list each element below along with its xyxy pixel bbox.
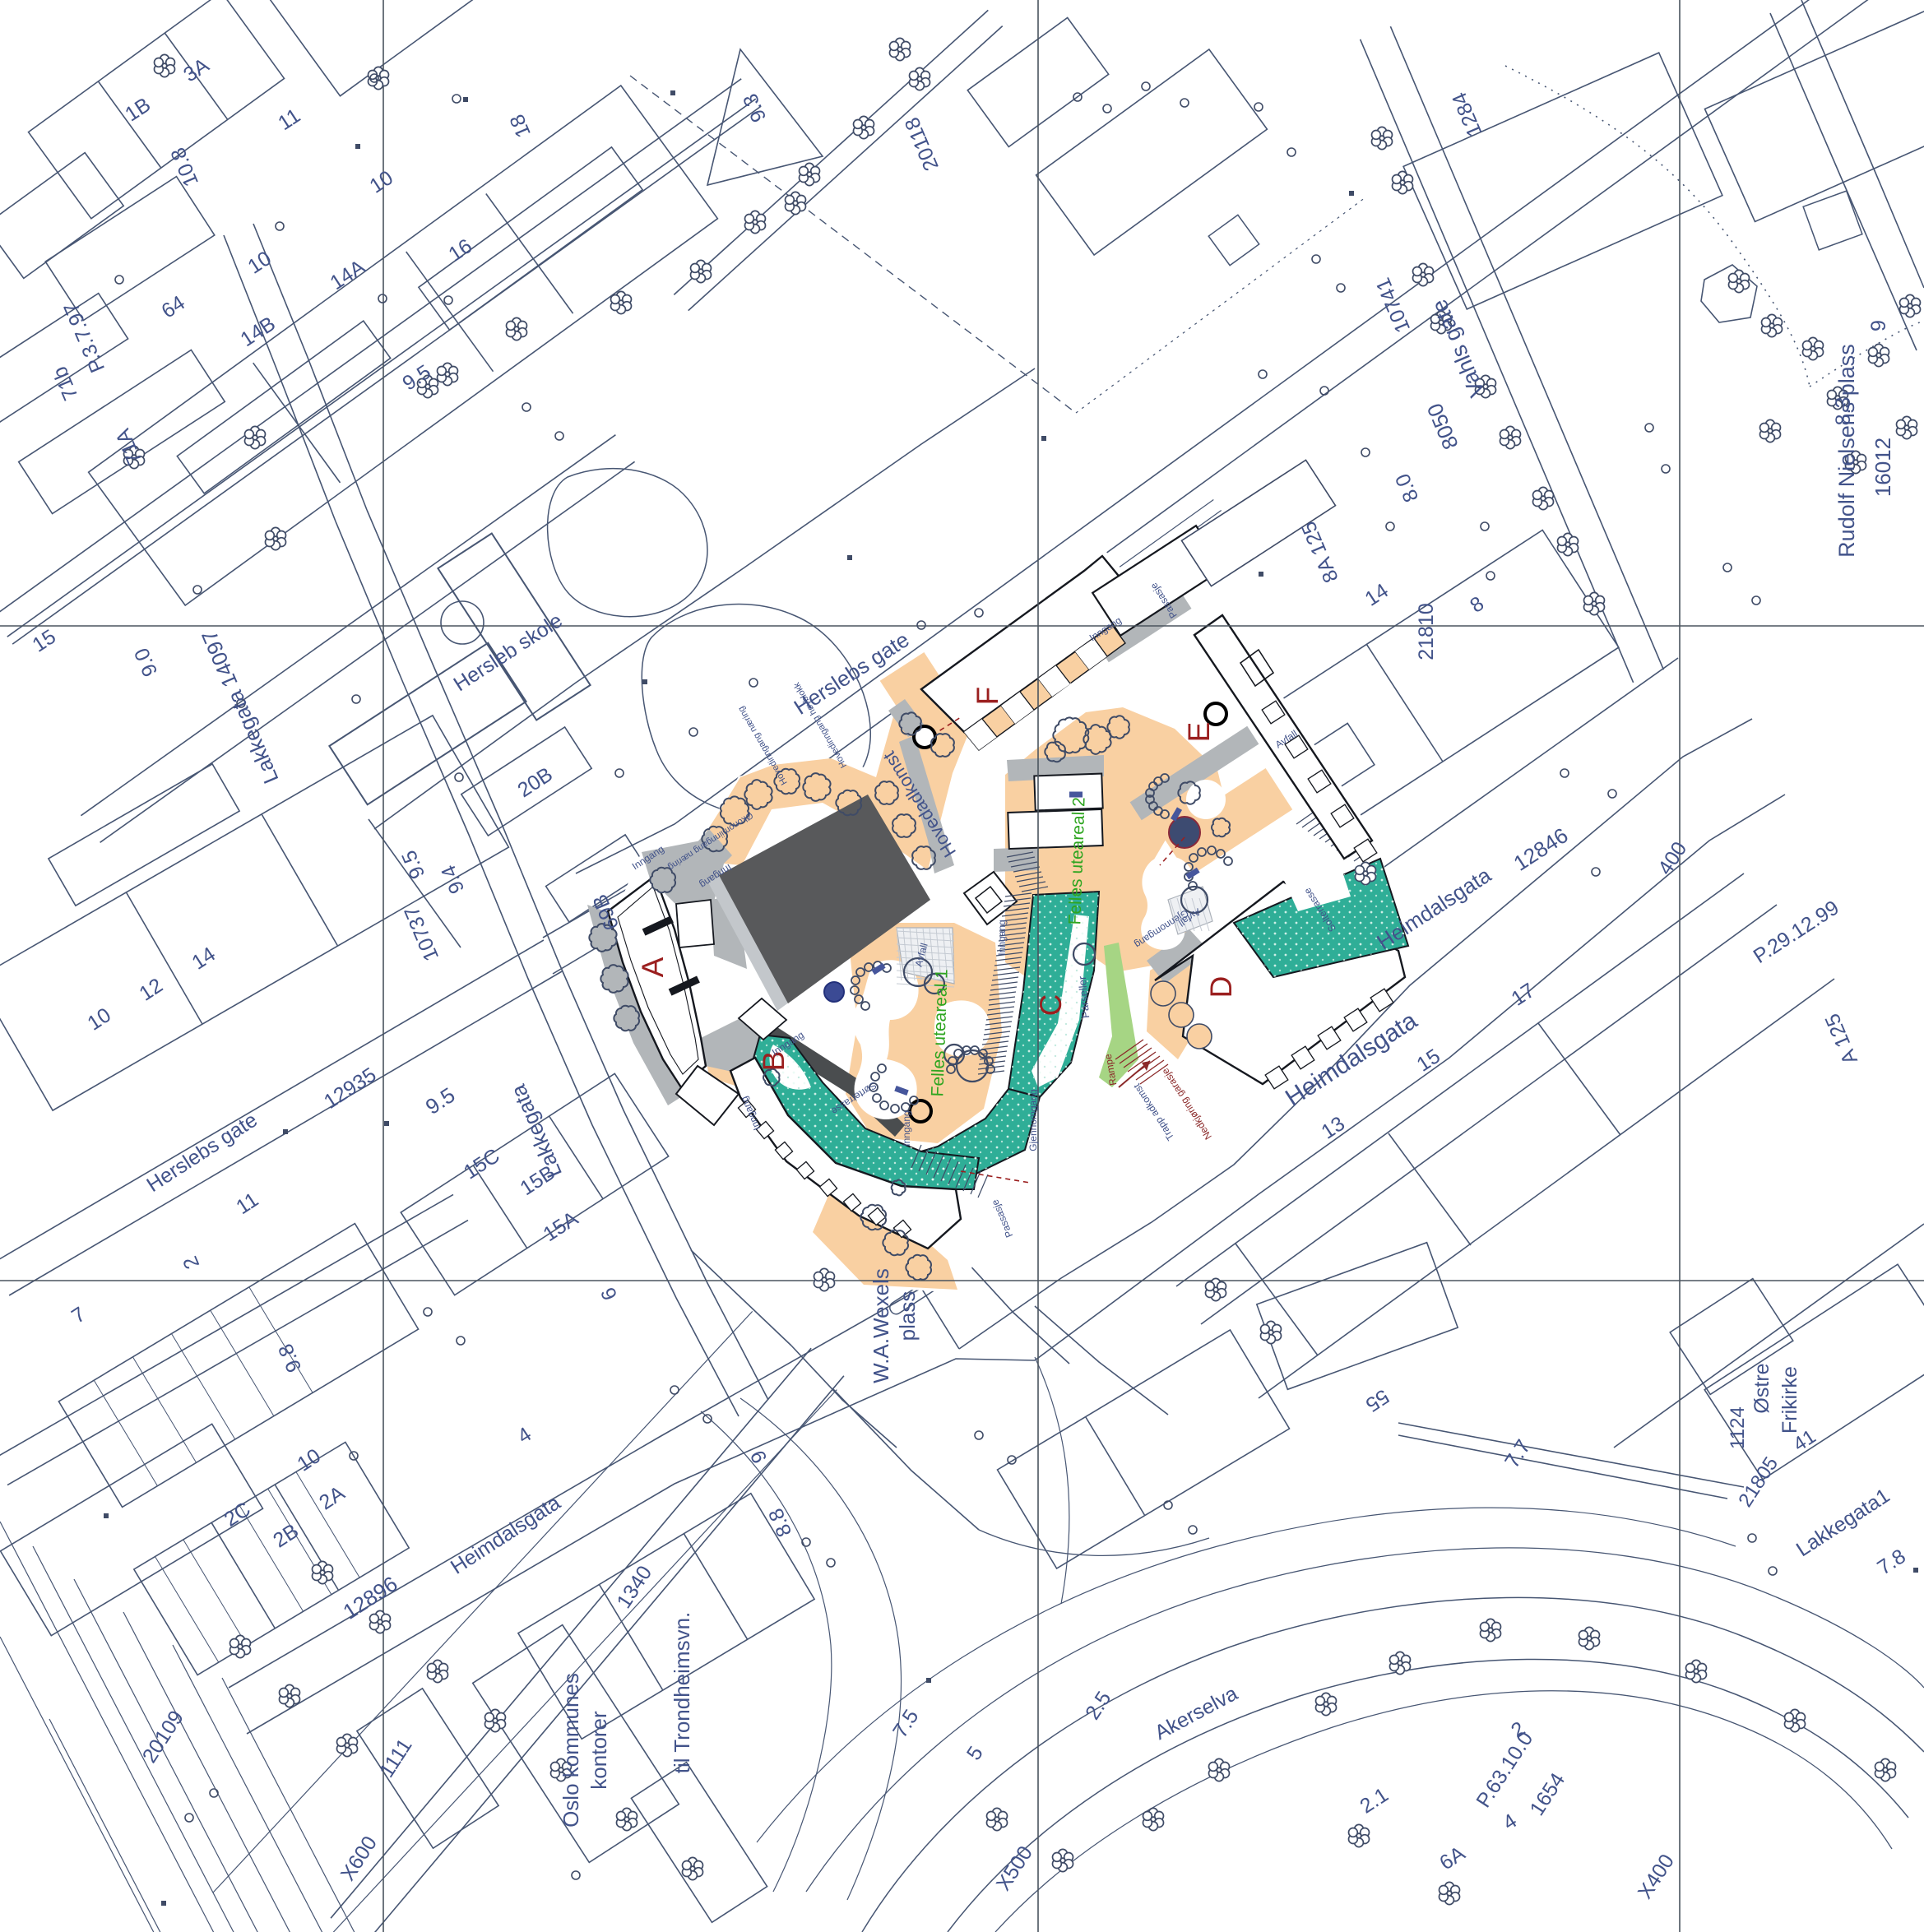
svg-text:kontorer: kontorer (586, 1711, 611, 1790)
svg-text:plass: plass (895, 1291, 920, 1341)
svg-text:9: 9 (1867, 320, 1890, 331)
svg-text:til Trondheimsvn.: til Trondheimsvn. (670, 1612, 694, 1774)
svg-text:A: A (636, 957, 670, 977)
svg-text:Rudolf Nielsens plass: Rudolf Nielsens plass (1834, 344, 1859, 558)
svg-text:1124: 1124 (1727, 1406, 1749, 1449)
svg-text:Inngang: Inngang (996, 920, 1008, 955)
svg-text:D: D (1204, 976, 1238, 998)
svg-text:8.3: 8.3 (1832, 397, 1855, 426)
svg-text:Frikirke: Frikirke (1778, 1366, 1801, 1434)
svg-text:Gjennomgang: Gjennomgang (1027, 1089, 1039, 1151)
svg-text:Østre: Østre (1750, 1363, 1773, 1413)
svg-text:16012: 16012 (1871, 438, 1895, 497)
svg-text:Oslo kommunes: Oslo kommunes (559, 1673, 583, 1828)
svg-text:C: C (1034, 994, 1068, 1017)
svg-text:21810: 21810 (1415, 603, 1438, 660)
svg-text:Inngang: Inngang (901, 1110, 912, 1146)
svg-text:W.A.Wexels: W.A.Wexels (869, 1268, 893, 1383)
svg-text:F: F (971, 687, 1004, 706)
svg-text:E: E (1182, 722, 1216, 743)
